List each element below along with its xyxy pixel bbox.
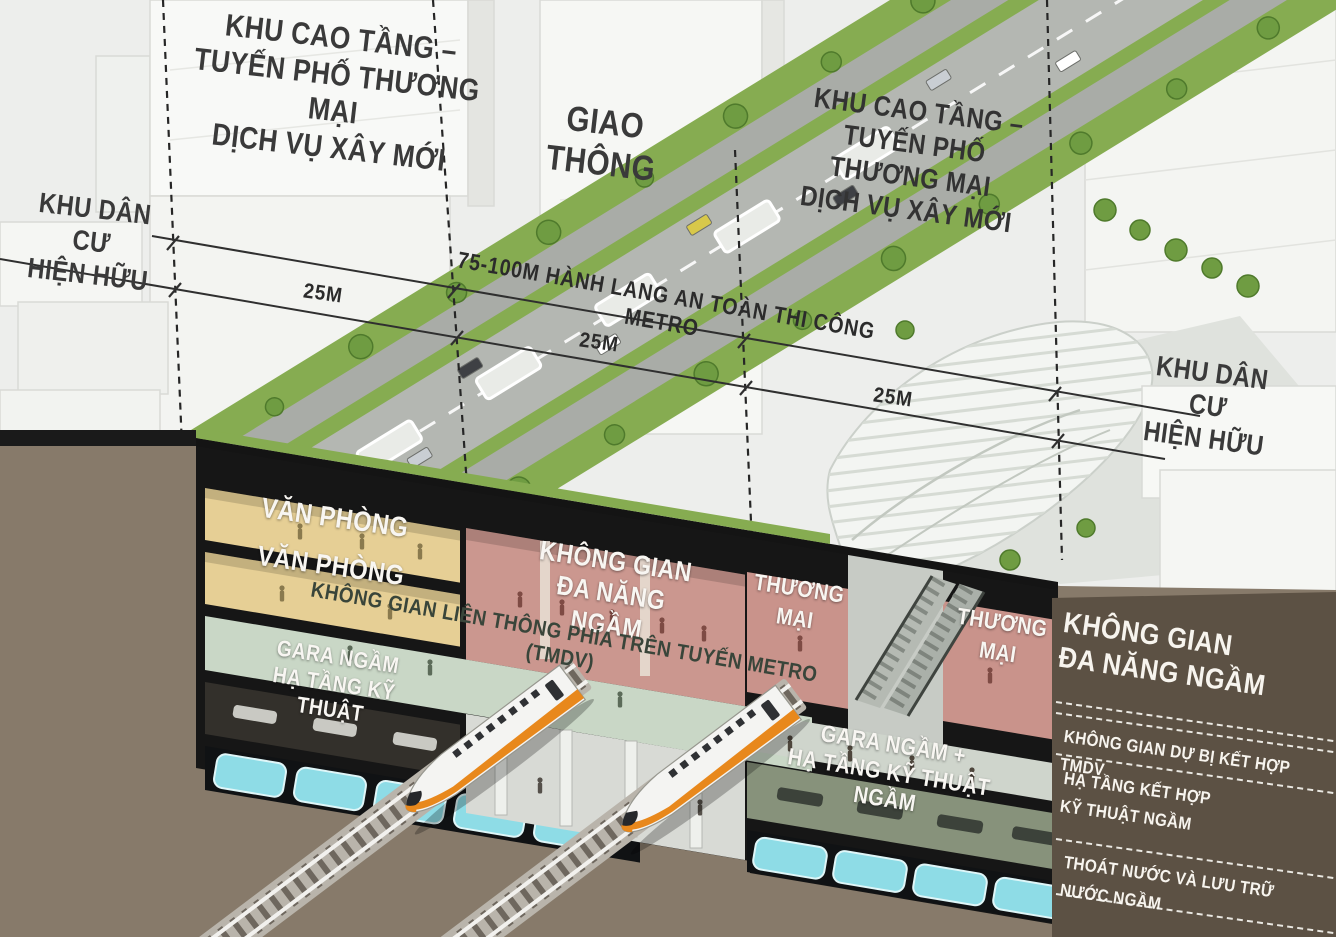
label-existing-residential-left: KHU DÂN CƯ HIỆN HỮU <box>12 184 171 299</box>
ground-cut-edge-left <box>0 430 198 446</box>
urban-metro-cross-section-diagram: KHU CAO TẦNG – TUYẾN PHỐ THƯƠNG MẠI DỊCH… <box>0 0 1336 937</box>
label-existing-residential-right: KHU DÂN CƯ HIỆN HỮU <box>1126 346 1291 464</box>
